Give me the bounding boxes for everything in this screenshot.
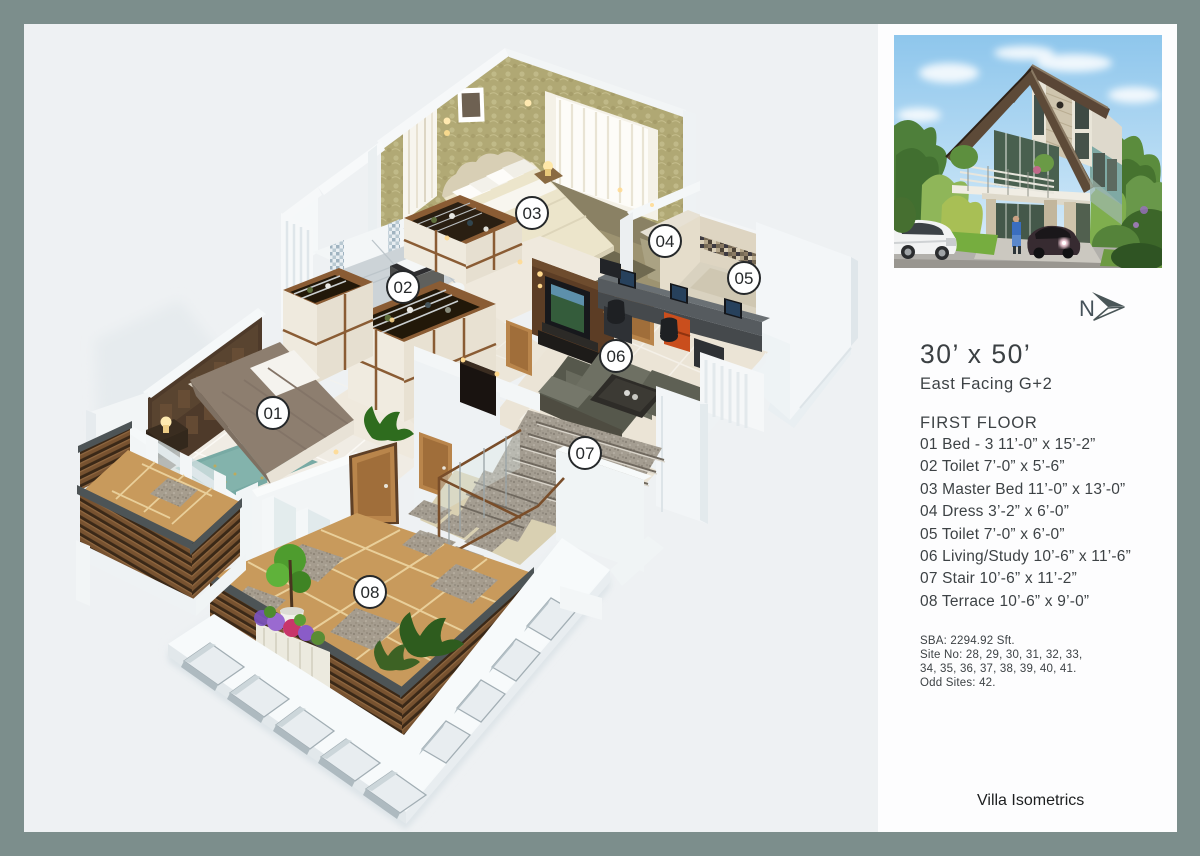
svg-text:07: 07 <box>576 444 595 463</box>
svg-text:05: 05 <box>735 269 754 288</box>
svg-text:08: 08 <box>361 583 380 602</box>
svg-text:04: 04 <box>656 232 675 251</box>
svg-text:03: 03 <box>523 204 542 223</box>
svg-text:01: 01 <box>264 404 283 423</box>
svg-text:N: N <box>1079 296 1095 321</box>
svg-text:06: 06 <box>607 347 626 366</box>
svg-text:02: 02 <box>394 278 413 297</box>
